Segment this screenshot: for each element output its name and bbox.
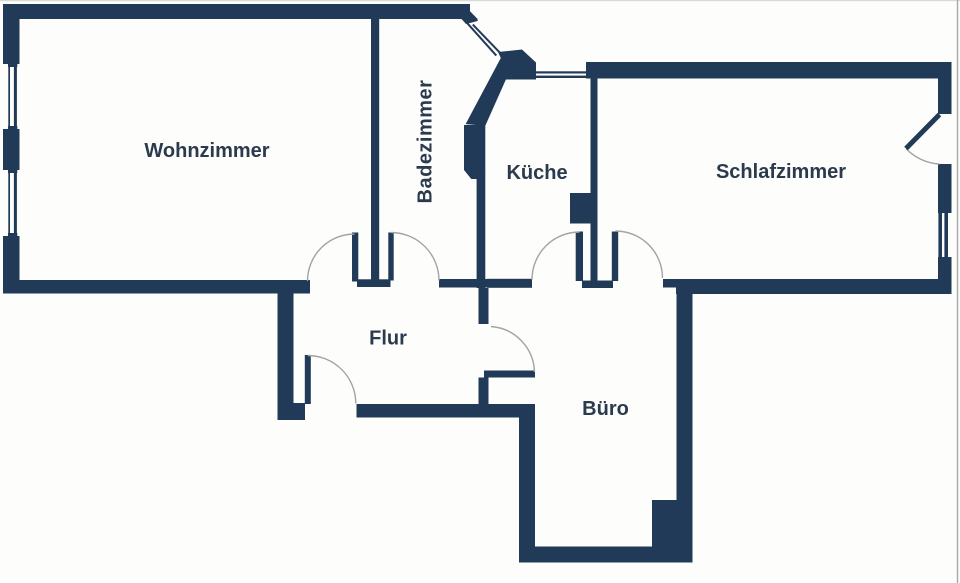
svg-text:Küche: Küche bbox=[506, 162, 567, 184]
svg-text:Badezimmer: Badezimmer bbox=[415, 80, 437, 204]
svg-text:Büro: Büro bbox=[582, 398, 629, 420]
svg-text:Schlafzimmer: Schlafzimmer bbox=[716, 161, 846, 183]
svg-text:Wohnzimmer: Wohnzimmer bbox=[144, 140, 269, 162]
svg-text:Flur: Flur bbox=[369, 328, 407, 350]
